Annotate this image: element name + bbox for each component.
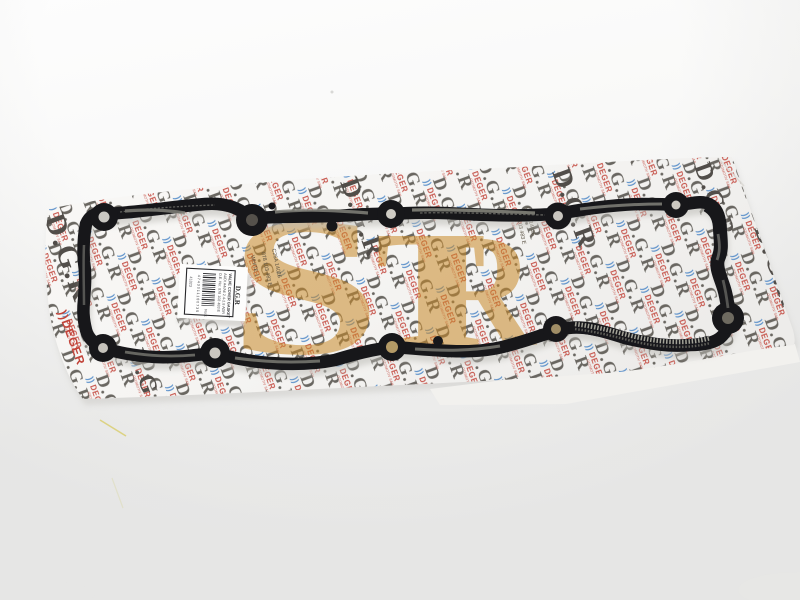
svg-text:41823: 41823: [188, 276, 193, 287]
svg-text:No:1: No:1: [203, 309, 207, 317]
